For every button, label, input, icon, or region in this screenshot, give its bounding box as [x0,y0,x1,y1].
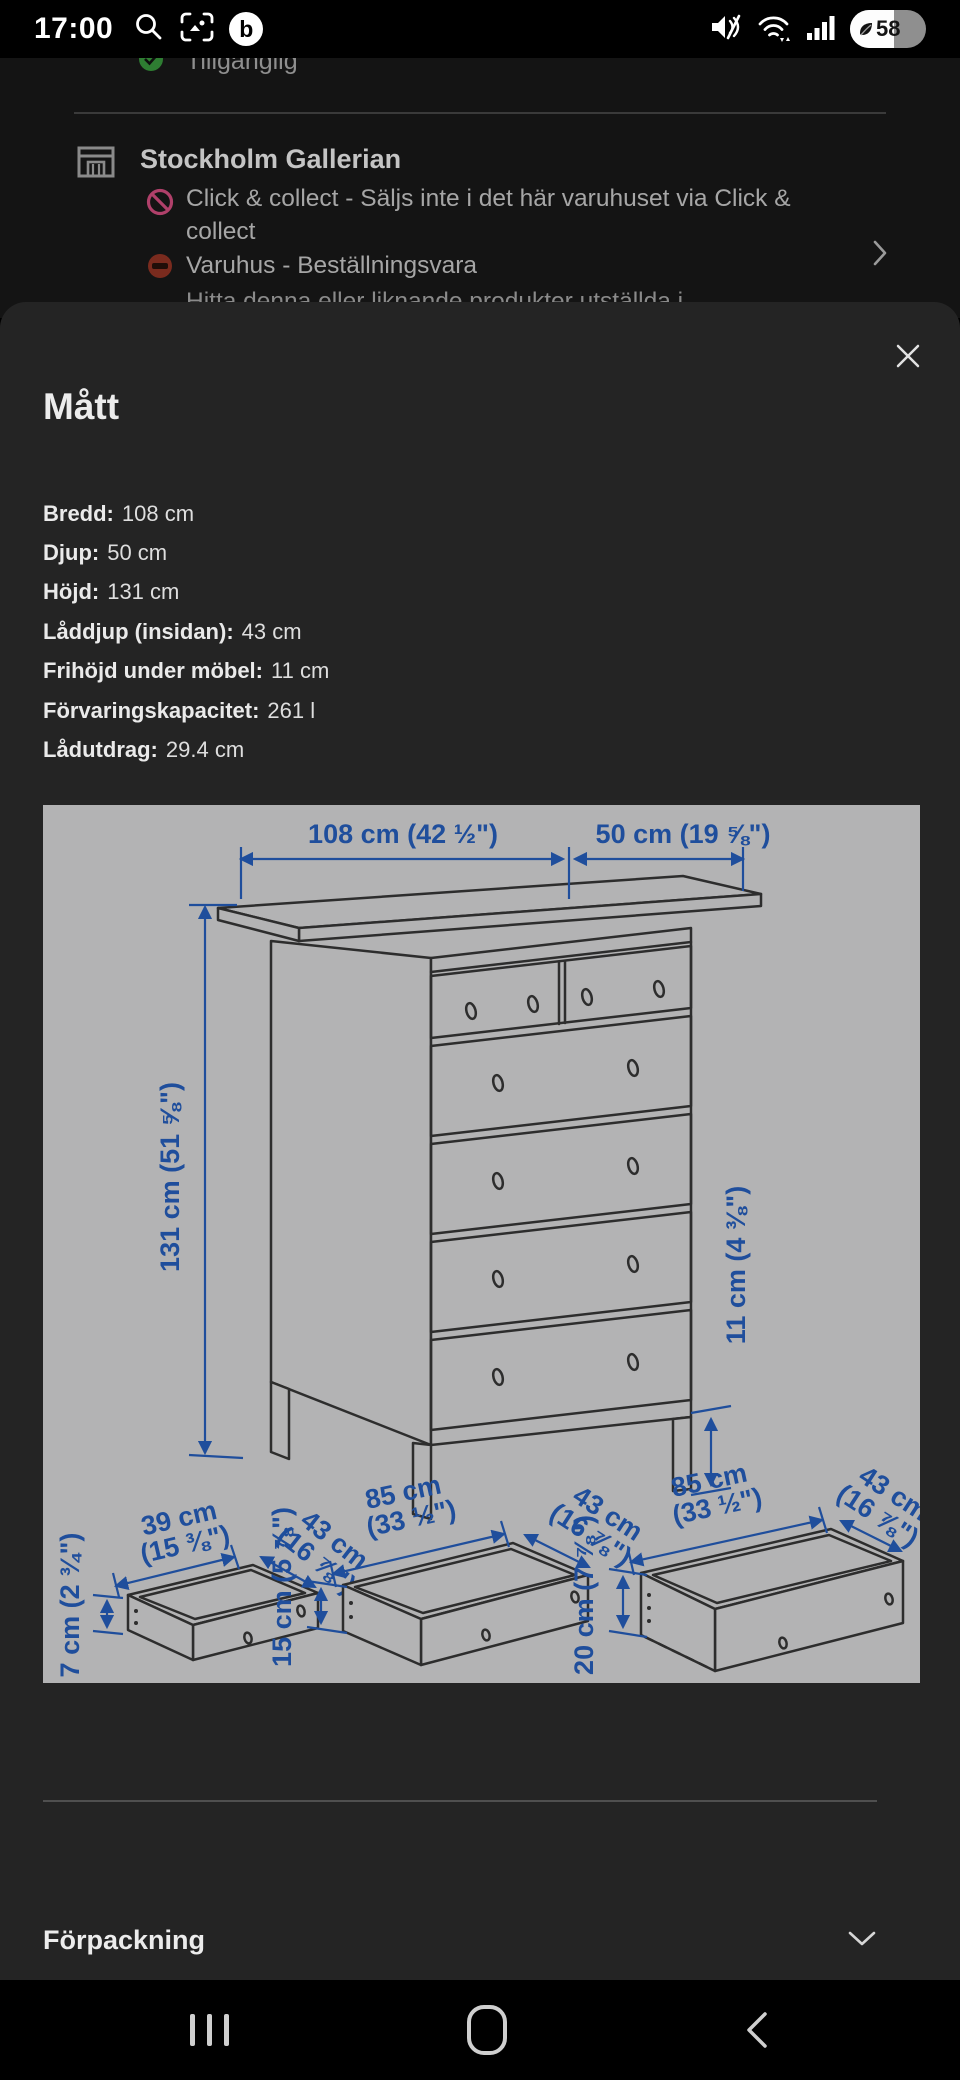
measurement-value: 131 cm [107,579,179,605]
measurement-label: Låddjup (insidan): [43,619,234,645]
measurement-label: Djup: [43,540,99,566]
measurement-row: Höjd:131 cm [43,573,329,612]
availability-label: Tillgänglig [186,58,298,76]
measurement-value: 50 cm [107,540,167,566]
system-nav-bar [0,1980,960,2080]
chevron-right-icon[interactable] [872,240,888,271]
page-title: Mått [43,386,119,428]
divider [74,112,886,114]
screen-capture-icon [179,11,215,48]
back-button[interactable] [744,2010,770,2050]
measurement-row: Bredd:108 cm [43,494,329,533]
clock: 17:00 [34,12,113,46]
dim-clearance: 11 cm (4 ⅜") [721,1186,751,1344]
measurement-value: 11 cm [271,658,329,684]
measurement-row: Djup:50 cm [43,533,329,572]
drawer-small: 39 cm (15 ⅜") 43 cm (16 ⅞") 7 cm (2 ¾") [55,1495,374,1677]
restricted-circle-icon [146,252,174,285]
close-icon [893,341,923,371]
drawer-height-label: 15 cm (5 ⅞") [267,1507,297,1667]
home-icon [467,2005,507,2055]
store-icon [72,138,120,191]
measurement-row: Lådutdrag:29.4 cm [43,730,329,769]
measurement-value: 43 cm [242,619,302,645]
dimension-diagram: 108 cm (42 ½") 50 cm (19 ⅝") 131 cm (51 … [43,805,920,1683]
measurement-label: Frihöjd under möbel: [43,658,263,684]
measurement-label: Förvaringskapacitet: [43,698,259,724]
check-circle-icon [138,58,164,77]
warehouse-note: Varuhus - Beställningsvara [186,252,477,280]
section-label: Förpackning [43,1925,205,1956]
measurement-value: 29.4 cm [166,737,244,763]
mute-icon [708,10,742,49]
measurement-value: 261 l [267,698,315,724]
dim-height: 131 cm (51 ⅝") [155,1082,185,1272]
measurement-row: Låddjup (insidan):43 cm [43,612,329,651]
recents-icon [190,2014,229,2046]
screen: 17:00 b 58 [0,0,960,2080]
back-icon [744,2010,770,2050]
background-page: Tillgänglig Stockholm Gallerian Click & … [0,58,960,318]
battery-percent: 58 [876,16,900,42]
power-saving-leaf-icon [857,20,875,38]
divider [43,1800,877,1802]
measurement-value: 108 cm [122,501,194,527]
measurement-label: Höjd: [43,579,99,605]
drawer-height-label: 20 cm (7 ⅞") [569,1515,599,1675]
measurement-row: Förvaringskapacitet:261 l [43,691,329,730]
status-bar-right: 58 [708,10,926,49]
battery-icon: 58 [850,10,926,48]
wifi-icon [756,10,792,49]
dresser-drawing: 108 cm (42 ½") 50 cm (19 ⅝") 131 cm (51 … [43,805,920,1683]
recents-button[interactable] [190,2014,229,2046]
store-name: Stockholm Gallerian [140,144,401,175]
status-bar-left: 17:00 b [34,11,263,48]
measurements-list: Bredd:108 cm Djup:50 cm Höjd:131 cm Lådd… [43,494,329,770]
status-bar: 17:00 b 58 [0,0,960,58]
prohibited-icon [146,188,174,221]
click-collect-note: Click & collect - Säljs inte i det här v… [186,182,846,248]
home-button[interactable] [467,2005,507,2055]
chevron-down-icon [847,1930,877,1951]
measurements-modal: Mått Bredd:108 cm Djup:50 cm Höjd:131 cm… [0,302,960,2080]
b-app-badge: b [229,12,263,46]
drawer-height-label: 7 cm (2 ¾") [55,1533,85,1678]
signal-icon [806,11,836,48]
measurement-row: Frihöjd under möbel:11 cm [43,652,329,691]
dim-width: 108 cm (42 ½") [308,819,498,849]
measurement-label: Bredd: [43,501,114,527]
dim-depth: 50 cm (19 ⅝") [596,819,771,849]
section-forpackning[interactable]: Förpackning [43,1898,877,1982]
measurement-label: Lådutdrag: [43,737,158,763]
availability-row: Tillgänglig [138,58,298,77]
search-icon [133,11,165,48]
close-button[interactable] [886,334,930,378]
